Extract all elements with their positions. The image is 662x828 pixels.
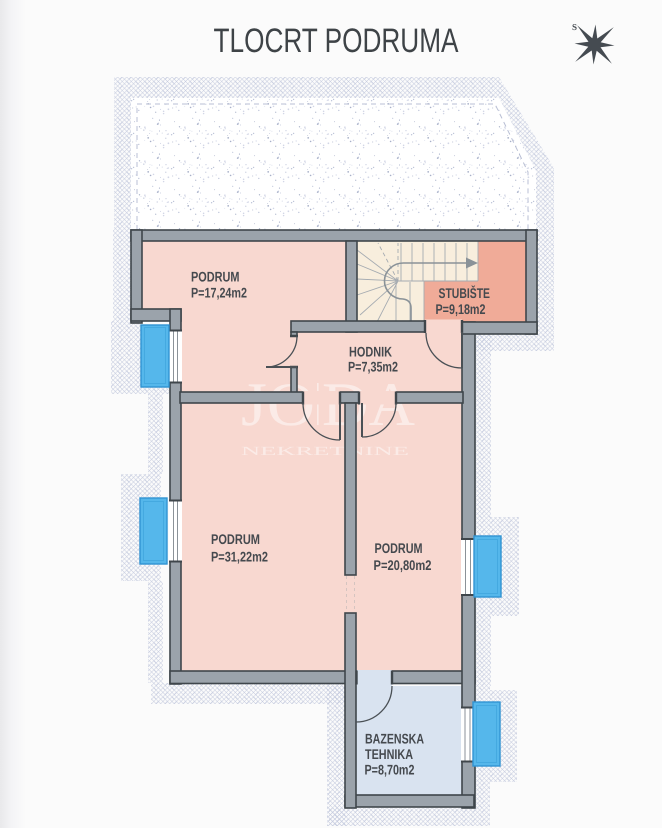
svg-text:P=9,18m2: P=9,18m2 — [436, 301, 486, 317]
svg-text:PODRUM: PODRUM — [191, 269, 240, 285]
svg-text:S: S — [572, 22, 577, 32]
svg-text:P=8,70m2: P=8,70m2 — [365, 762, 415, 778]
svg-text:P=31,22m2: P=31,22m2 — [211, 549, 268, 565]
svg-text:HODNIK: HODNIK — [349, 344, 392, 360]
svg-text:P=20,80m2: P=20,80m2 — [374, 557, 432, 573]
svg-text:BAZENSKA: BAZENSKA — [365, 731, 424, 747]
svg-text:P=17,24m2: P=17,24m2 — [191, 285, 247, 301]
svg-text:STUBIŠTE: STUBIŠTE — [439, 285, 491, 301]
svg-text:NEKRETNINE: NEKRETNINE — [241, 444, 410, 458]
svg-text:JO: JO — [241, 371, 315, 439]
svg-text:TLOCRT PODRUMA: TLOCRT PODRUMA — [214, 22, 459, 60]
svg-text:DA: DA — [322, 371, 415, 439]
svg-text:TEHNIKA: TEHNIKA — [365, 746, 413, 762]
svg-text:P=7,35m2: P=7,35m2 — [348, 359, 398, 375]
svg-text:PODRUM: PODRUM — [375, 540, 423, 556]
svg-text:PODRUM: PODRUM — [211, 531, 260, 547]
